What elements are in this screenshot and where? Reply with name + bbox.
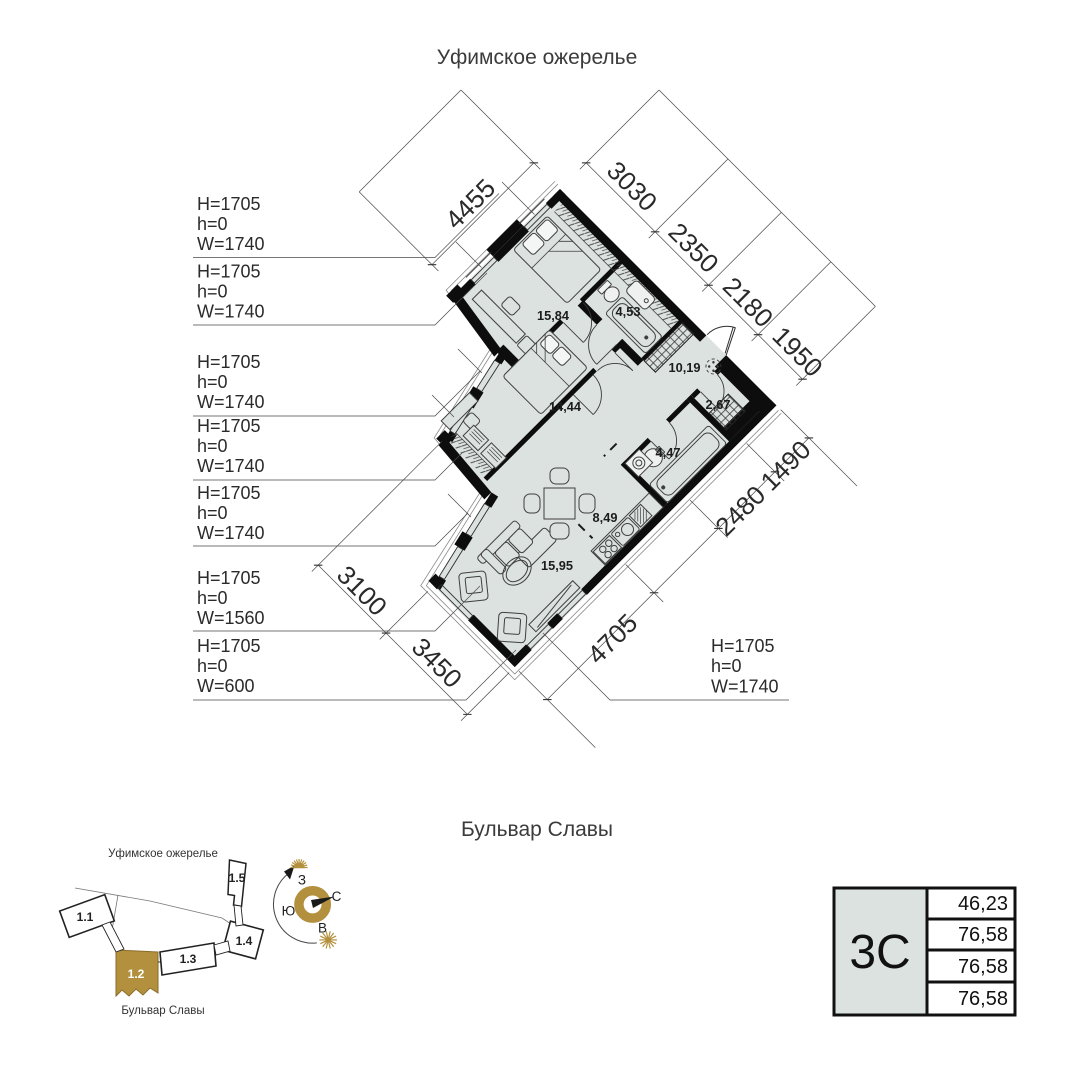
- svg-text:76,58: 76,58: [958, 956, 1008, 978]
- svg-text:2180: 2180: [717, 271, 779, 333]
- svg-text:1.4: 1.4: [236, 934, 253, 948]
- svg-text:h=0: h=0: [197, 588, 228, 608]
- svg-text:h=0: h=0: [197, 214, 228, 234]
- svg-text:W=1740: W=1740: [197, 392, 265, 412]
- svg-text:H=1705: H=1705: [197, 636, 261, 656]
- svg-text:H=1705: H=1705: [197, 194, 261, 214]
- svg-text:W=1740: W=1740: [197, 523, 265, 543]
- svg-text:14,44: 14,44: [549, 399, 582, 414]
- svg-text:1.5: 1.5: [229, 871, 246, 885]
- svg-text:Бульвар Славы: Бульвар Славы: [121, 1005, 204, 1017]
- svg-text:3С: 3С: [849, 926, 910, 979]
- svg-text:H=1705: H=1705: [711, 636, 775, 656]
- svg-text:W=1740: W=1740: [711, 677, 779, 697]
- svg-text:4705: 4705: [581, 608, 643, 670]
- svg-text:Уфимское ожерелье: Уфимское ожерелье: [437, 46, 638, 69]
- svg-text:2480: 2480: [709, 480, 771, 542]
- svg-text:h=0: h=0: [197, 656, 228, 676]
- svg-text:H=1705: H=1705: [197, 483, 261, 503]
- svg-text:W=1740: W=1740: [197, 234, 265, 254]
- svg-text:С: С: [332, 889, 342, 904]
- svg-text:1.2: 1.2: [128, 967, 145, 981]
- svg-text:4,47: 4,47: [656, 445, 681, 460]
- svg-text:h=0: h=0: [711, 656, 742, 676]
- svg-text:2,67: 2,67: [706, 397, 731, 412]
- svg-text:З: З: [298, 873, 306, 888]
- svg-text:W=1560: W=1560: [197, 608, 265, 628]
- svg-text:15,95: 15,95: [541, 558, 573, 573]
- svg-text:4455: 4455: [439, 173, 501, 235]
- svg-text:3030: 3030: [601, 155, 663, 217]
- svg-text:10,19: 10,19: [668, 360, 700, 375]
- svg-text:Бульвар Славы: Бульвар Славы: [461, 818, 613, 841]
- svg-text:h=0: h=0: [197, 503, 228, 523]
- svg-text:W=600: W=600: [197, 676, 255, 696]
- svg-text:3450: 3450: [406, 632, 468, 694]
- svg-text:46,23: 46,23: [958, 893, 1008, 915]
- svg-text:h=0: h=0: [197, 372, 228, 392]
- svg-text:2350: 2350: [663, 217, 725, 279]
- svg-text:4,53: 4,53: [616, 304, 641, 319]
- svg-text:Ю: Ю: [282, 904, 296, 919]
- svg-text:76,58: 76,58: [958, 988, 1008, 1010]
- svg-text:1950: 1950: [767, 321, 829, 383]
- svg-text:1490: 1490: [755, 434, 817, 496]
- svg-text:W=1740: W=1740: [197, 456, 265, 476]
- svg-text:H=1705: H=1705: [197, 352, 261, 372]
- svg-text:h=0: h=0: [197, 282, 228, 302]
- svg-text:H=1705: H=1705: [197, 568, 261, 588]
- svg-text:1.1: 1.1: [77, 910, 94, 924]
- svg-text:1.3: 1.3: [180, 952, 197, 966]
- svg-text:W=1740: W=1740: [197, 302, 265, 322]
- svg-text:Уфимское ожерелье: Уфимское ожерелье: [108, 848, 218, 860]
- svg-text:15,84: 15,84: [537, 308, 570, 323]
- svg-text:H=1705: H=1705: [197, 262, 261, 282]
- svg-text:3100: 3100: [331, 560, 393, 622]
- svg-text:H=1705: H=1705: [197, 416, 261, 436]
- svg-text:8,49: 8,49: [593, 510, 618, 525]
- svg-text:76,58: 76,58: [958, 924, 1008, 946]
- svg-text:h=0: h=0: [197, 436, 228, 456]
